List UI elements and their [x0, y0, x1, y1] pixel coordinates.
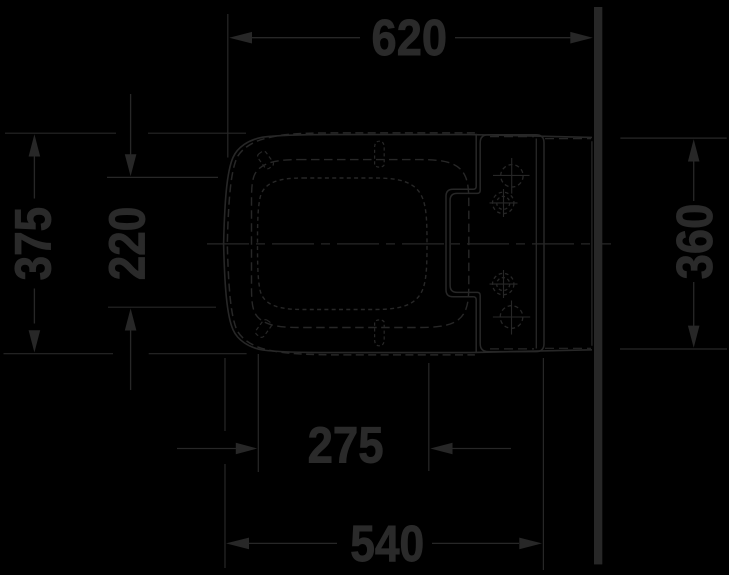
svg-text:540: 540 — [350, 515, 424, 572]
svg-text:375: 375 — [4, 207, 61, 281]
svg-text:360: 360 — [666, 204, 723, 280]
svg-text:620: 620 — [372, 9, 448, 66]
svg-text:275: 275 — [308, 417, 384, 474]
svg-text:220: 220 — [98, 207, 155, 281]
